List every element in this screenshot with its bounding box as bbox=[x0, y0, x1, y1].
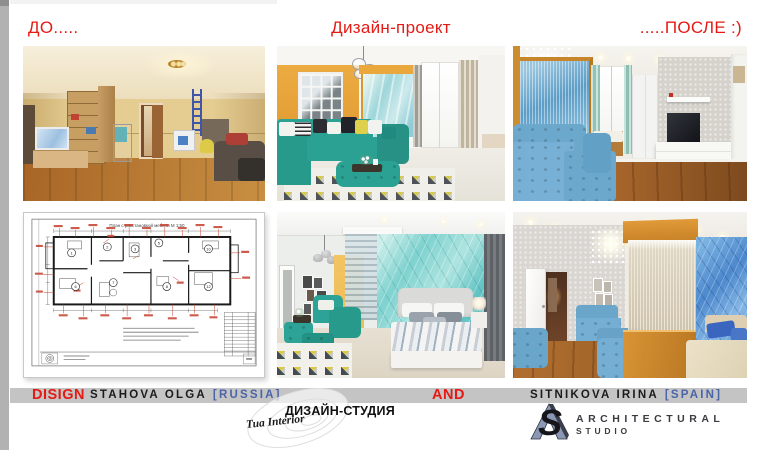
svg-text:7: 7 bbox=[112, 280, 114, 285]
photo-before-living-room bbox=[23, 46, 265, 201]
mirror-art-grid bbox=[298, 72, 344, 123]
designer2-name-text: SITNIKOVA IRINA bbox=[530, 389, 659, 401]
partition-beam bbox=[359, 65, 421, 74]
photo-after-bedroom bbox=[513, 212, 747, 378]
room-numbers: 1 2 3 5 6 7 8 10 12 bbox=[68, 239, 213, 291]
ceiling-spotlight bbox=[441, 219, 446, 224]
tv-stand bbox=[33, 150, 89, 168]
partition-crown bbox=[343, 227, 402, 234]
shelf-item-red bbox=[71, 114, 78, 120]
svg-text:12: 12 bbox=[206, 284, 210, 289]
beige-curtain bbox=[459, 60, 477, 155]
floor-plan-sheet: План с расстановкой мебели М 1:50 bbox=[23, 212, 265, 378]
red-decor-object bbox=[669, 93, 674, 97]
svg-text:2: 2 bbox=[106, 244, 108, 249]
tv bbox=[667, 113, 700, 144]
red-annotations bbox=[43, 227, 241, 316]
bed-base bbox=[391, 351, 482, 368]
notes-lines bbox=[123, 328, 198, 340]
frame bbox=[303, 303, 312, 315]
tv-screen bbox=[35, 127, 69, 150]
designer2-country: [SPAIN] bbox=[665, 389, 722, 401]
pillow bbox=[279, 122, 295, 136]
nightstand bbox=[471, 312, 487, 329]
door-leaf bbox=[152, 105, 163, 158]
beaded-curtain bbox=[628, 240, 696, 335]
render-living-room bbox=[277, 46, 505, 201]
shelf-item-blue bbox=[86, 127, 96, 135]
pillow bbox=[382, 127, 396, 139]
gray-curtain bbox=[413, 65, 422, 147]
bedspread bbox=[686, 340, 747, 378]
photo-after-living-room bbox=[513, 46, 747, 201]
beaded-curtain-glow bbox=[628, 240, 696, 250]
svg-text:1: 1 bbox=[71, 250, 73, 255]
design-word: DISIGN bbox=[32, 388, 85, 403]
pillow bbox=[313, 119, 327, 133]
svg-text:10: 10 bbox=[206, 246, 211, 251]
vase bbox=[373, 159, 379, 165]
frame bbox=[603, 281, 612, 293]
as-logo-line1: ARCHITECTURAL bbox=[576, 413, 724, 425]
flowers bbox=[359, 155, 373, 166]
as-logo-line2: STUDIO bbox=[576, 426, 631, 436]
teal-armchair bbox=[329, 307, 361, 339]
flowers bbox=[295, 308, 304, 316]
frame bbox=[313, 277, 323, 289]
title-block bbox=[40, 352, 256, 364]
dark-curtain bbox=[484, 234, 505, 362]
frame bbox=[595, 293, 604, 306]
credits-bar: DISIGN STAHOVA OLGA[RUSSIA] AND SITNIKOV… bbox=[10, 388, 747, 403]
wardrobe-seam bbox=[645, 75, 646, 157]
shell-logo-small bbox=[46, 355, 54, 363]
after-label: .....ПОСЛЕ :) bbox=[513, 18, 742, 38]
red-cushion bbox=[226, 133, 248, 145]
table-lamp bbox=[472, 297, 486, 312]
render-bedroom bbox=[277, 212, 505, 378]
ceiling-lamp bbox=[168, 60, 186, 68]
pillow bbox=[368, 120, 382, 134]
frame bbox=[593, 278, 603, 291]
frame bbox=[302, 275, 313, 289]
wall-shelf bbox=[667, 97, 709, 102]
chair-cushion bbox=[318, 300, 334, 310]
chandelier-shades bbox=[313, 250, 336, 265]
pillow bbox=[295, 122, 311, 136]
and-word: AND bbox=[432, 388, 465, 403]
black-bag bbox=[238, 158, 265, 181]
window bbox=[421, 62, 460, 149]
before-label: ДО..... bbox=[28, 18, 78, 38]
box-logo bbox=[178, 136, 188, 145]
window-mullion bbox=[439, 62, 440, 149]
ceiling-spotlight bbox=[597, 54, 604, 61]
open-shelf-nook bbox=[733, 66, 745, 83]
design-portfolio-slide: ДО..... Дизайн-проект .....ПОСЛЕ :) bbox=[0, 0, 770, 450]
hallway-mirror bbox=[548, 278, 557, 311]
top-toolbar-remnant bbox=[10, 0, 277, 4]
window-edge-corner bbox=[0, 0, 9, 6]
floor-plan-drawing: План с расстановкой мебели М 1:50 bbox=[24, 213, 264, 377]
blue-sofa-arm bbox=[583, 133, 611, 173]
project-label: Дизайн-проект bbox=[277, 18, 505, 38]
legend-table bbox=[224, 312, 255, 356]
window-edge-strip bbox=[0, 0, 9, 450]
ceiling-spotlight bbox=[382, 217, 387, 222]
designer1-name-text: STAHOVA OLGA bbox=[90, 389, 207, 401]
ceiling-spotlight bbox=[478, 222, 483, 227]
teal-curtain-right bbox=[624, 65, 632, 155]
towel bbox=[115, 127, 127, 143]
geometric-rug bbox=[277, 343, 352, 378]
pillow bbox=[327, 122, 341, 134]
media-console bbox=[482, 134, 505, 148]
yellow-bag bbox=[200, 139, 215, 153]
s-letter: S bbox=[538, 402, 562, 443]
blue-sofa-module bbox=[513, 328, 548, 368]
as-monogram: S bbox=[527, 401, 573, 443]
pillow bbox=[355, 120, 369, 134]
